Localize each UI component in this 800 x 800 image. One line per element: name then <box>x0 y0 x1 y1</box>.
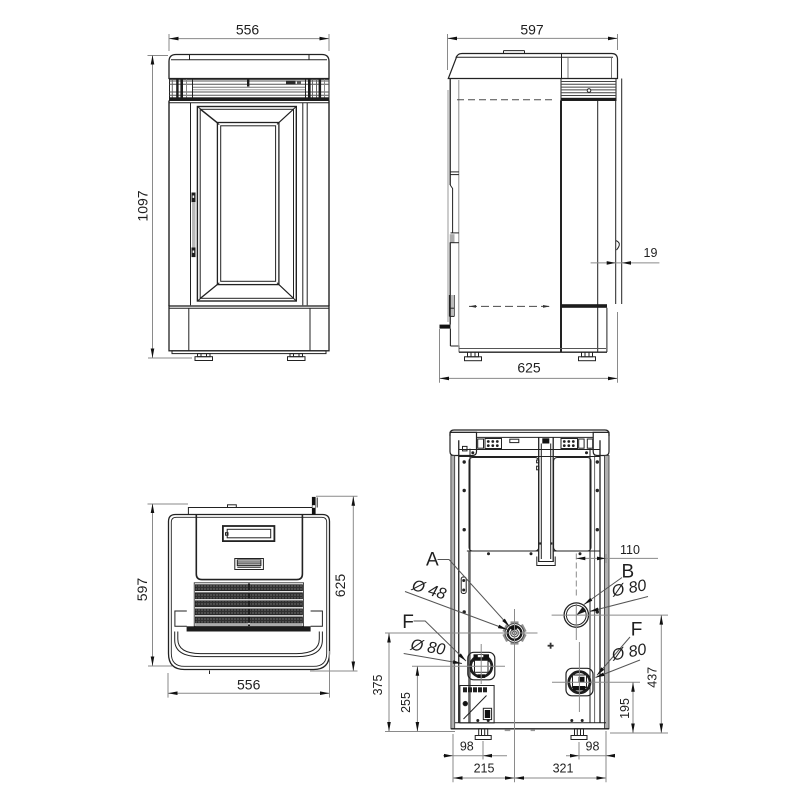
svg-text:Ø 80: Ø 80 <box>610 577 648 601</box>
svg-text:98: 98 <box>460 740 474 754</box>
svg-text:98: 98 <box>586 740 600 754</box>
svg-text:597: 597 <box>520 22 544 38</box>
svg-text:321: 321 <box>553 762 574 776</box>
svg-text:A: A <box>426 550 439 571</box>
svg-text:556: 556 <box>237 677 261 693</box>
svg-text:110: 110 <box>620 543 640 557</box>
svg-text:Ø 80: Ø 80 <box>610 641 648 665</box>
svg-text:215: 215 <box>474 762 495 776</box>
svg-text:375: 375 <box>371 675 385 696</box>
svg-text:Ø 48: Ø 48 <box>409 577 448 604</box>
svg-text:255: 255 <box>399 692 413 713</box>
svg-text:437: 437 <box>645 667 659 688</box>
svg-text:625: 625 <box>517 360 541 376</box>
svg-text:195: 195 <box>618 698 632 719</box>
svg-text:556: 556 <box>236 22 260 38</box>
svg-text:F: F <box>631 619 643 640</box>
svg-text:597: 597 <box>134 578 150 602</box>
svg-text:19: 19 <box>644 246 658 260</box>
svg-text:625: 625 <box>332 574 348 598</box>
svg-text:1097: 1097 <box>135 190 151 221</box>
svg-text:F: F <box>402 612 414 633</box>
